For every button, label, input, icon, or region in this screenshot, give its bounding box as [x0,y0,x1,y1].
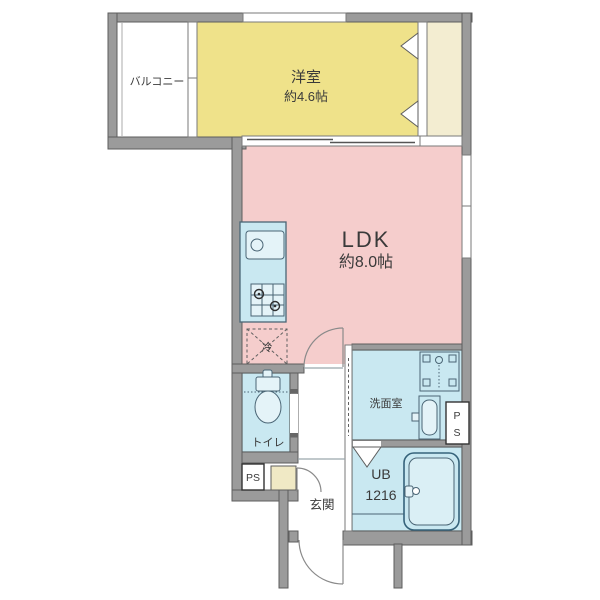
pipe-space-right-label-s: S [453,427,460,439]
wall-porch-right [394,544,402,588]
western-room-label: 洋室 [291,69,321,86]
toilet-label: トイレ [252,437,285,449]
ldk-label: LDK [342,227,391,252]
ldk-size: 約8.0帖 [339,253,393,271]
pipe-space-left-label: PS [246,472,260,484]
kitchen-sink [246,231,284,259]
toilet-door-opening [290,394,298,433]
unit-bath-label: UB [371,466,390,482]
toilet-bowl [255,391,281,423]
balcony-label: バルコニー [130,75,185,88]
sliding-door-western-ldk [242,136,420,146]
wall-bottom [343,531,472,545]
window-top [243,13,346,22]
stove [251,284,284,316]
washroom-label: 洗面室 [370,396,403,410]
balcony-window-sash [188,22,197,137]
stove-burner-dot [258,293,261,296]
wall-balcony-bottom [108,137,246,149]
hall-door-swing-arc [297,468,321,492]
wall-washroom-top [352,344,462,350]
washbasin-bowl [422,400,437,435]
shoe-cabinet [271,466,296,490]
beam-under-closet [420,136,462,146]
floorplan-drawing: バルコニー 洋室 約4.6帖 LDK 約8.0帖 冷 トイレ PS 玄関 洗面室… [0,0,600,600]
bathtub-handle-icon [413,488,420,495]
floorplan-canvas: バルコニー 洋室 約4.6帖 LDK 約8.0帖 冷 トイレ PS 玄関 洗面室… [0,0,600,600]
toilet-door-jamb-bottom [290,433,299,438]
wall-right [462,13,471,545]
entrance-door-swing-arc [299,540,343,584]
entrance-label: 玄関 [309,497,334,512]
wall-toilet-bottom [242,452,298,463]
bathtub-handle-tab [405,486,413,497]
closet-door-track [418,22,427,137]
bath-door-opening [353,441,381,447]
partition-hall-washroom [345,345,352,531]
pipe-space-right-label-p: P [453,410,460,422]
refrigerator-label: 冷 [262,341,273,354]
wall-bottom-stub [289,531,298,542]
stove-burner-dot [274,305,277,308]
wall-balcony-left [108,13,117,149]
western-room-size: 約4.6帖 [284,89,328,104]
wall-porch-left [279,490,288,588]
closet-area [427,22,462,137]
unit-bath-size: 1216 [365,487,396,503]
toilet-door-jamb-top [290,389,299,394]
toilet-tank [256,377,280,391]
